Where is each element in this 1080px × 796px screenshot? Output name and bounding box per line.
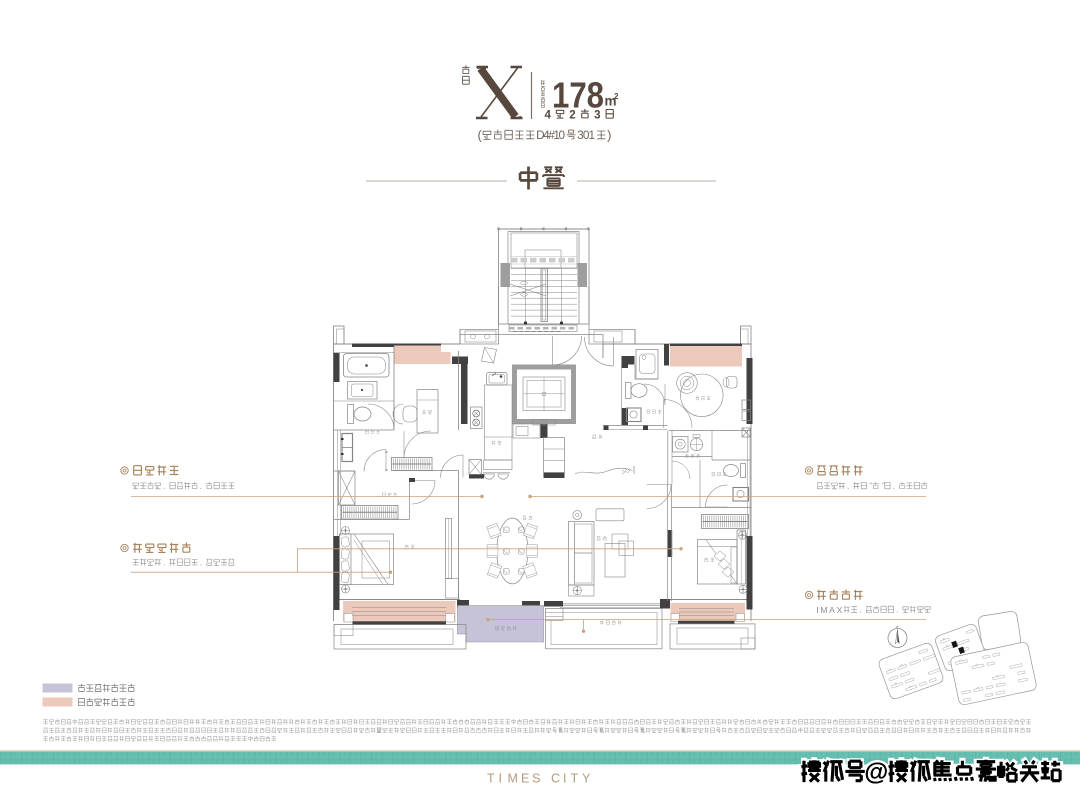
svg-text:(: ( [478, 128, 483, 143]
svg-text:C: C [551, 772, 560, 786]
svg-text:4: 4 [545, 110, 552, 122]
svg-text:T: T [571, 772, 579, 786]
svg-text:@: @ [864, 759, 888, 786]
svg-text:2: 2 [569, 110, 575, 122]
svg-text:D4#10: D4#10 [536, 128, 565, 142]
svg-text:E: E [521, 772, 529, 786]
svg-text:M: M [508, 772, 518, 786]
svg-text:): ) [607, 128, 611, 143]
svg-text:IMAX: IMAX [816, 605, 842, 615]
svg-text:I: I [499, 772, 502, 786]
svg-text:S: S [532, 772, 540, 786]
svg-text:Y: Y [582, 772, 591, 786]
svg-text:2: 2 [614, 92, 619, 101]
svg-text:I: I [563, 772, 566, 786]
svg-text:T: T [487, 772, 495, 786]
svg-text:301: 301 [577, 128, 595, 142]
svg-text:3: 3 [594, 110, 600, 122]
